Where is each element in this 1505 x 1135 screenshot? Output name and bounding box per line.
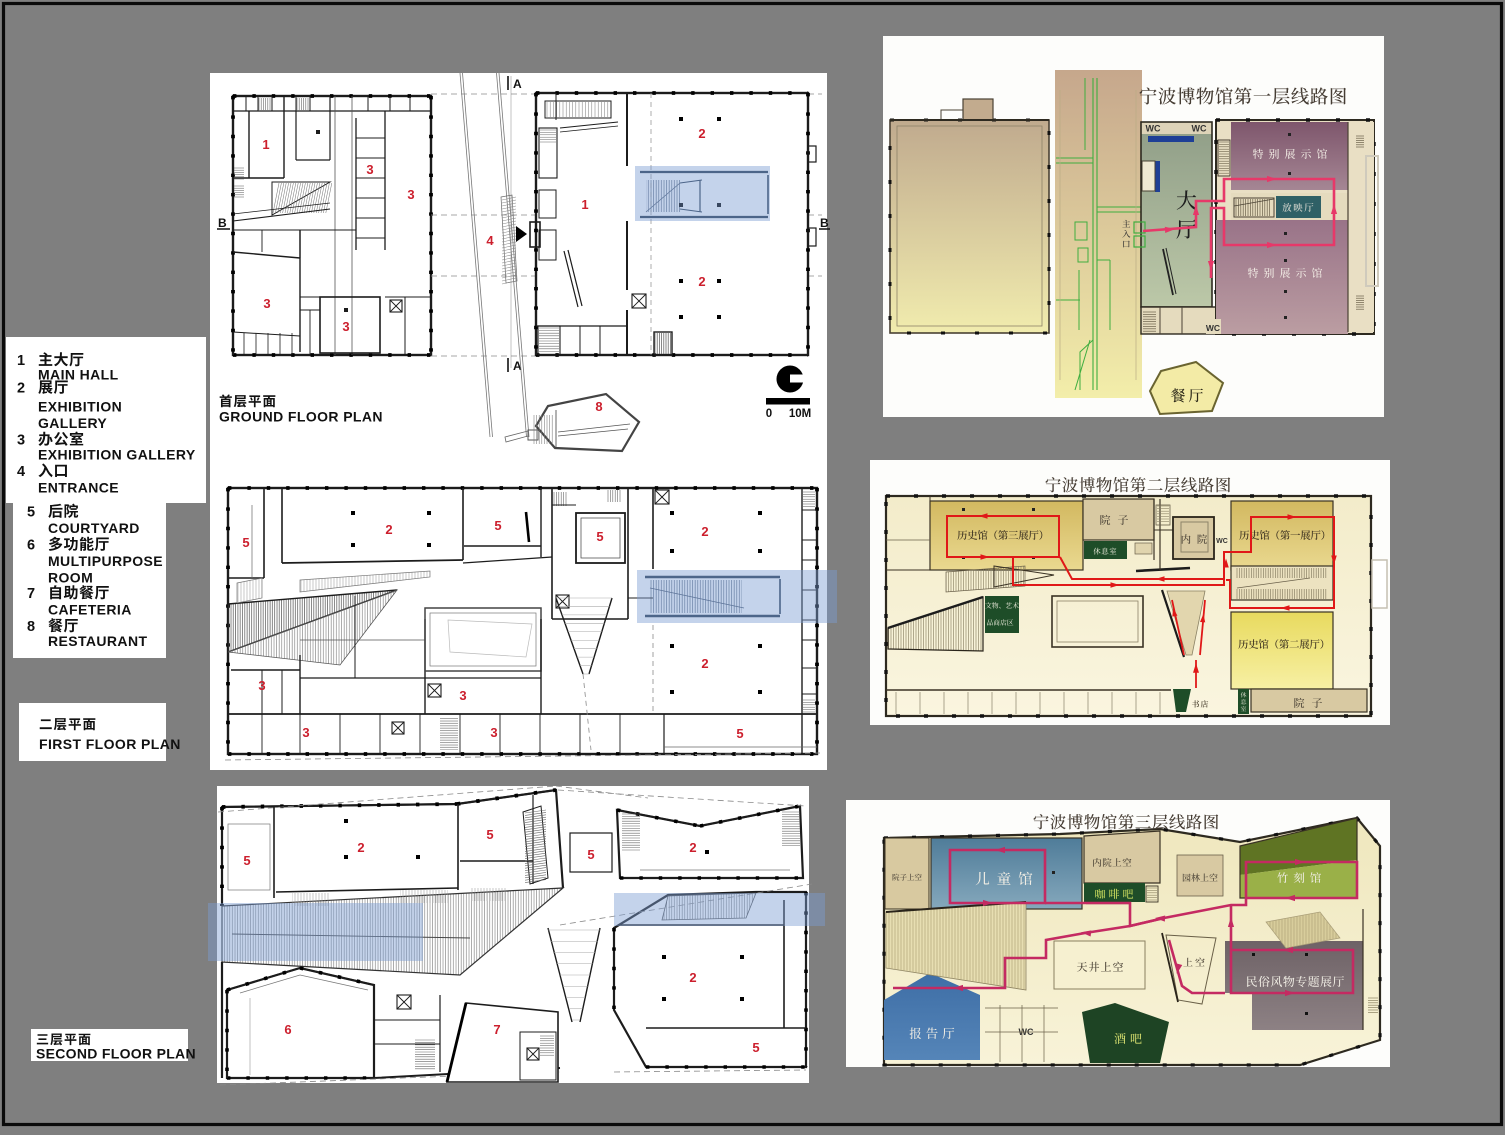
svg-text:2: 2 [17,381,25,397]
svg-text:SECOND FLOOR PLAN: SECOND FLOOR PLAN [36,1046,196,1062]
svg-text:2: 2 [689,970,696,985]
svg-text:5: 5 [243,853,250,868]
svg-text:2: 2 [698,126,705,141]
svg-text:RESTAURANT: RESTAURANT [48,633,147,649]
svg-text:3: 3 [263,296,270,311]
svg-text:6: 6 [284,1022,291,1037]
svg-text:MULTIPURPOSE: MULTIPURPOSE [48,553,163,569]
svg-text:1: 1 [581,197,588,212]
svg-text:2: 2 [701,656,708,671]
svg-text:EXHIBITION: EXHIBITION [38,399,122,415]
svg-text:5: 5 [27,505,35,521]
svg-text:6: 6 [27,538,35,554]
svg-text:CAFETERIA: CAFETERIA [48,602,132,618]
svg-text:2: 2 [689,840,696,855]
svg-text:2: 2 [385,522,392,537]
svg-text:3: 3 [17,433,25,449]
svg-text:8: 8 [27,619,35,635]
svg-text:WC: WC [1206,323,1220,333]
svg-text:5: 5 [736,726,743,741]
svg-text:WC: WC [1192,124,1207,134]
svg-text:3: 3 [302,725,309,740]
svg-text:2: 2 [701,524,708,539]
svg-text:7: 7 [27,586,35,602]
svg-text:3: 3 [407,187,414,202]
svg-text:A: A [513,77,522,91]
svg-text:ENTRANCE: ENTRANCE [38,480,119,496]
svg-text:10M: 10M [789,408,811,420]
svg-text:5: 5 [494,518,501,533]
svg-text:4: 4 [17,464,25,480]
svg-text:3: 3 [459,688,466,703]
svg-text:COURTYARD: COURTYARD [48,520,140,536]
svg-text:EXHIBITION GALLERY: EXHIBITION GALLERY [38,447,196,463]
svg-text:B: B [820,216,829,230]
svg-text:5: 5 [242,535,249,550]
svg-text:WC: WC [1146,124,1161,134]
svg-text:5: 5 [486,827,493,842]
svg-text:2: 2 [357,840,364,855]
svg-text:3: 3 [366,162,373,177]
svg-text:5: 5 [587,847,594,862]
svg-text:4: 4 [486,233,494,248]
svg-text:5: 5 [596,529,603,544]
svg-text:WC: WC [1216,538,1228,545]
svg-text:7: 7 [493,1022,500,1037]
svg-text:MAIN HALL: MAIN HALL [38,367,119,383]
svg-text:3: 3 [490,725,497,740]
svg-text:0: 0 [766,408,772,420]
svg-text:GALLERY: GALLERY [38,415,107,431]
svg-text:8: 8 [595,399,602,414]
svg-text:GROUND FLOOR PLAN: GROUND FLOOR PLAN [219,409,383,425]
svg-text:3: 3 [258,678,265,693]
svg-text:5: 5 [752,1040,759,1055]
svg-text:2: 2 [698,274,705,289]
svg-text:3: 3 [342,319,349,334]
svg-text:FIRST FLOOR PLAN: FIRST FLOOR PLAN [39,736,181,752]
svg-text:1: 1 [262,137,269,152]
svg-text:ROOM: ROOM [48,570,93,586]
svg-text:1: 1 [17,353,25,369]
svg-text:B: B [218,216,227,230]
